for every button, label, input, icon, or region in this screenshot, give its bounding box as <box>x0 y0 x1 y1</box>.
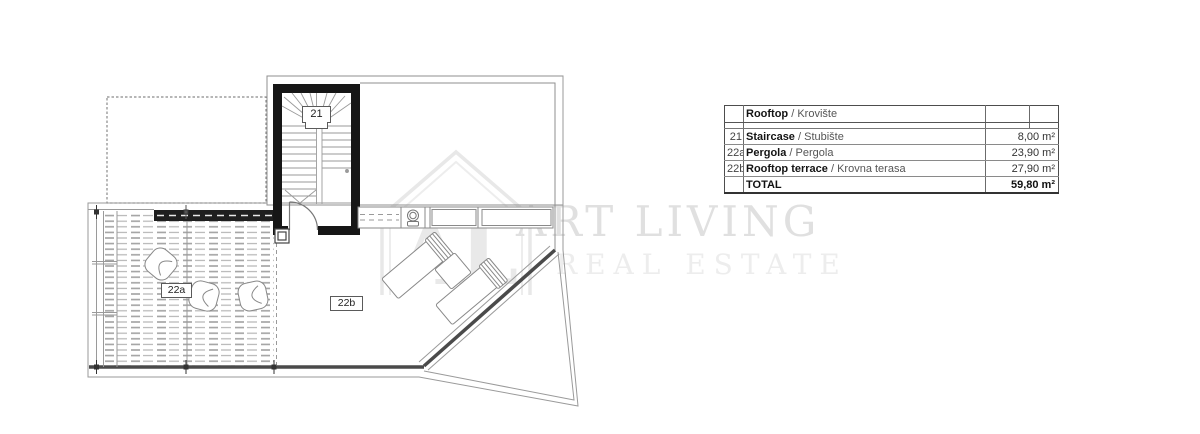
room-label-text: 21 <box>310 109 322 120</box>
total-area: 59,80 m² <box>986 177 1059 194</box>
row-name: Rooftop terrace / Krovna terasa <box>744 161 986 177</box>
row-name-hr: Krovna terasa <box>837 163 905 175</box>
row-name-hr: Pergola <box>796 147 834 159</box>
row-name-en: Rooftop terrace <box>746 163 828 175</box>
total-no-cell <box>725 177 744 194</box>
row-area: 23,90 m² <box>986 145 1059 161</box>
row-no: 22a <box>725 145 744 161</box>
header-area-cell <box>986 106 1030 123</box>
areas-table: Rooftop / Krovište 21 Staircase / Stubiš… <box>724 105 1059 194</box>
total-label: TOTAL <box>744 177 986 194</box>
watermark-title: ART LIVING <box>515 197 820 246</box>
roof-dashed-outline <box>107 97 266 203</box>
table-row-pergola: 22a Pergola / Pergola 23,90 m² <box>725 145 1059 161</box>
table-row-staircase: 21 Staircase / Stubište 8,00 m² <box>725 129 1059 145</box>
row-separator: / <box>828 163 837 175</box>
kitchen-counter <box>358 207 553 228</box>
room-label-staircase-area-tag <box>305 122 328 129</box>
header-no-cell <box>725 106 744 123</box>
row-name-hr: Stubište <box>804 131 844 143</box>
row-no: 21 <box>725 129 744 145</box>
room-label-text: 22b <box>338 298 356 309</box>
row-separator: / <box>786 147 795 159</box>
header-title-cell: Rooftop / Krovište <box>744 106 986 123</box>
row-name: Pergola / Pergola <box>744 145 986 161</box>
room-label-terrace: 22b <box>330 296 363 311</box>
room-label-pergola: 22a <box>161 283 192 298</box>
room-label-text: 22a <box>168 285 186 296</box>
table-row-terrace: 22b Rooftop terrace / Krovna terasa 27,9… <box>725 161 1059 177</box>
door <box>290 202 318 230</box>
corner-column <box>275 229 289 243</box>
row-area: 27,90 m² <box>986 161 1059 177</box>
row-name-en: Staircase <box>746 131 795 143</box>
row-area: 8,00 m² <box>986 129 1059 145</box>
floor-plan-drawing: AL ART LIVING REAL ESTATE <box>0 0 1200 434</box>
row-separator: / <box>795 131 804 143</box>
header-title-en: Rooftop <box>746 108 788 120</box>
header-title-hr: Krovište <box>797 108 837 120</box>
rooftop-floor-plan-page: AL ART LIVING REAL ESTATE <box>0 0 1200 434</box>
watermark-subtitle: REAL ESTATE <box>556 248 848 281</box>
table-header-row: Rooftop / Krovište <box>725 106 1059 123</box>
header-unit-cell <box>1030 106 1059 123</box>
room-label-staircase: 21 <box>302 106 331 123</box>
header-separator: / <box>788 108 797 120</box>
row-name-en: Pergola <box>746 147 786 159</box>
row-name: Staircase / Stubište <box>744 129 986 145</box>
row-no: 22b <box>725 161 744 177</box>
table-row-total: TOTAL 59,80 m² <box>725 177 1059 194</box>
